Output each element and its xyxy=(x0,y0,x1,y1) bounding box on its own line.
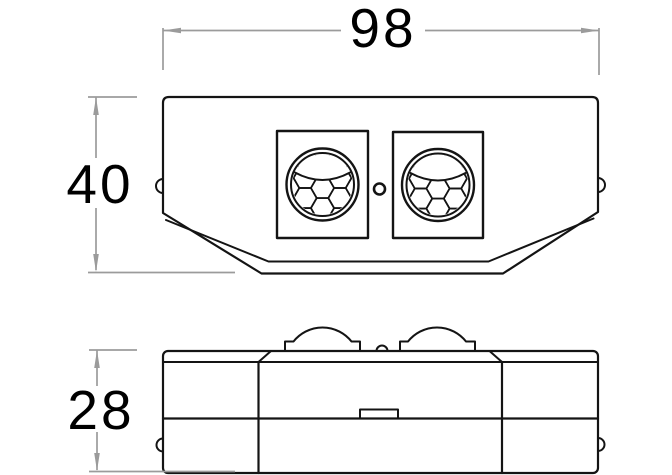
dimension-width-98: 98 xyxy=(163,0,599,75)
arrow-up-icon xyxy=(94,350,100,368)
arrow-down-icon xyxy=(94,453,100,471)
technical-drawing-page: 98 40 28 xyxy=(0,0,672,475)
left-pir-lens xyxy=(276,138,369,228)
right-pir-lens xyxy=(392,138,485,228)
fresnel-facets xyxy=(392,138,485,228)
arrow-up-icon xyxy=(93,97,99,115)
left-dome-lens xyxy=(285,327,360,351)
fresnel-facets xyxy=(276,138,369,228)
led-indicator xyxy=(374,184,385,195)
dimension-width-label: 98 xyxy=(349,0,416,59)
dimension-height-40: 40 xyxy=(66,97,235,273)
arrow-down-icon xyxy=(93,254,99,272)
cover-chamfer-right xyxy=(490,351,503,362)
right-dome-lens xyxy=(400,327,475,351)
dimension-depth-28: 28 xyxy=(67,350,235,472)
arrow-left-icon xyxy=(163,28,181,34)
dimension-height-label: 40 xyxy=(66,153,133,215)
release-tab xyxy=(360,410,398,419)
arrow-right-icon xyxy=(581,28,599,34)
side-body-outline xyxy=(163,351,598,473)
front-view xyxy=(156,97,605,274)
dimension-depth-label: 28 xyxy=(67,379,134,441)
cover-chamfer-left xyxy=(259,351,272,362)
pir-sensor-dimension-drawing: 98 40 28 xyxy=(0,0,672,475)
side-view xyxy=(157,327,605,473)
